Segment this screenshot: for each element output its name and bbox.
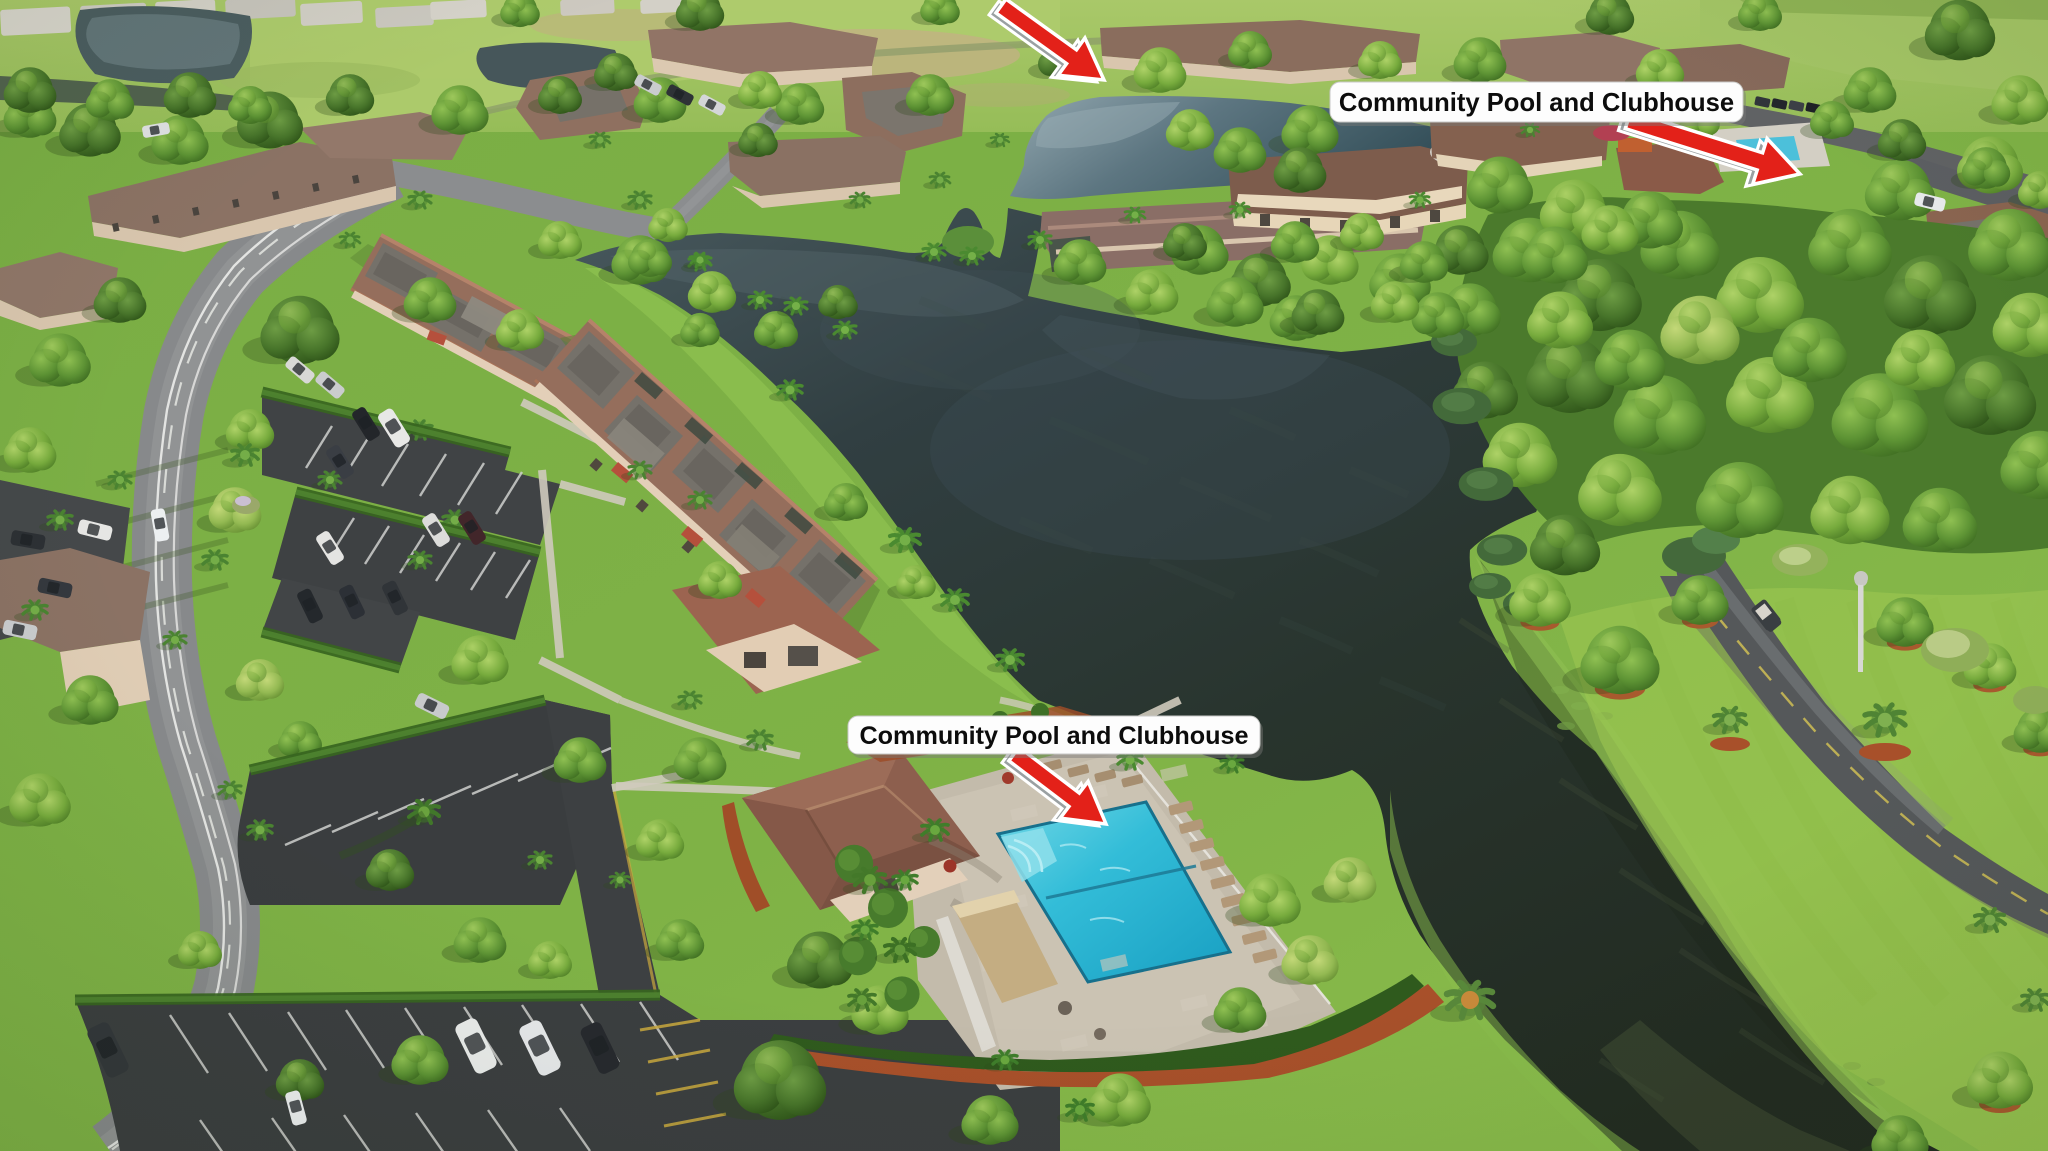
svg-text:Community Pool and Clubhouse: Community Pool and Clubhouse — [859, 722, 1248, 750]
svg-text:Community Pool and Clubhouse: Community Pool and Clubhouse — [1339, 89, 1734, 117]
